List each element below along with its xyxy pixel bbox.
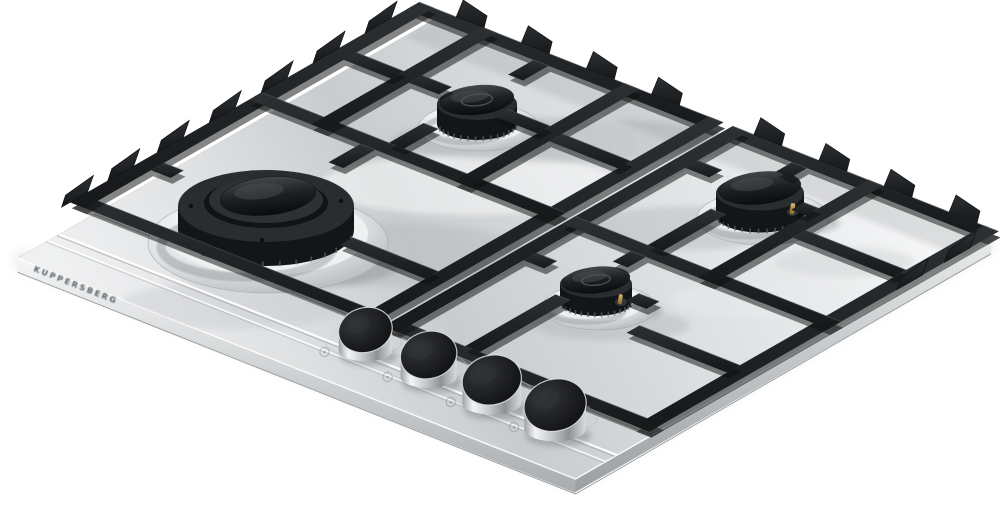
cooktop-product-image: KUPPERSBERG xyxy=(0,0,1000,510)
product-image-stage: KUPPERSBERG xyxy=(0,0,1000,510)
